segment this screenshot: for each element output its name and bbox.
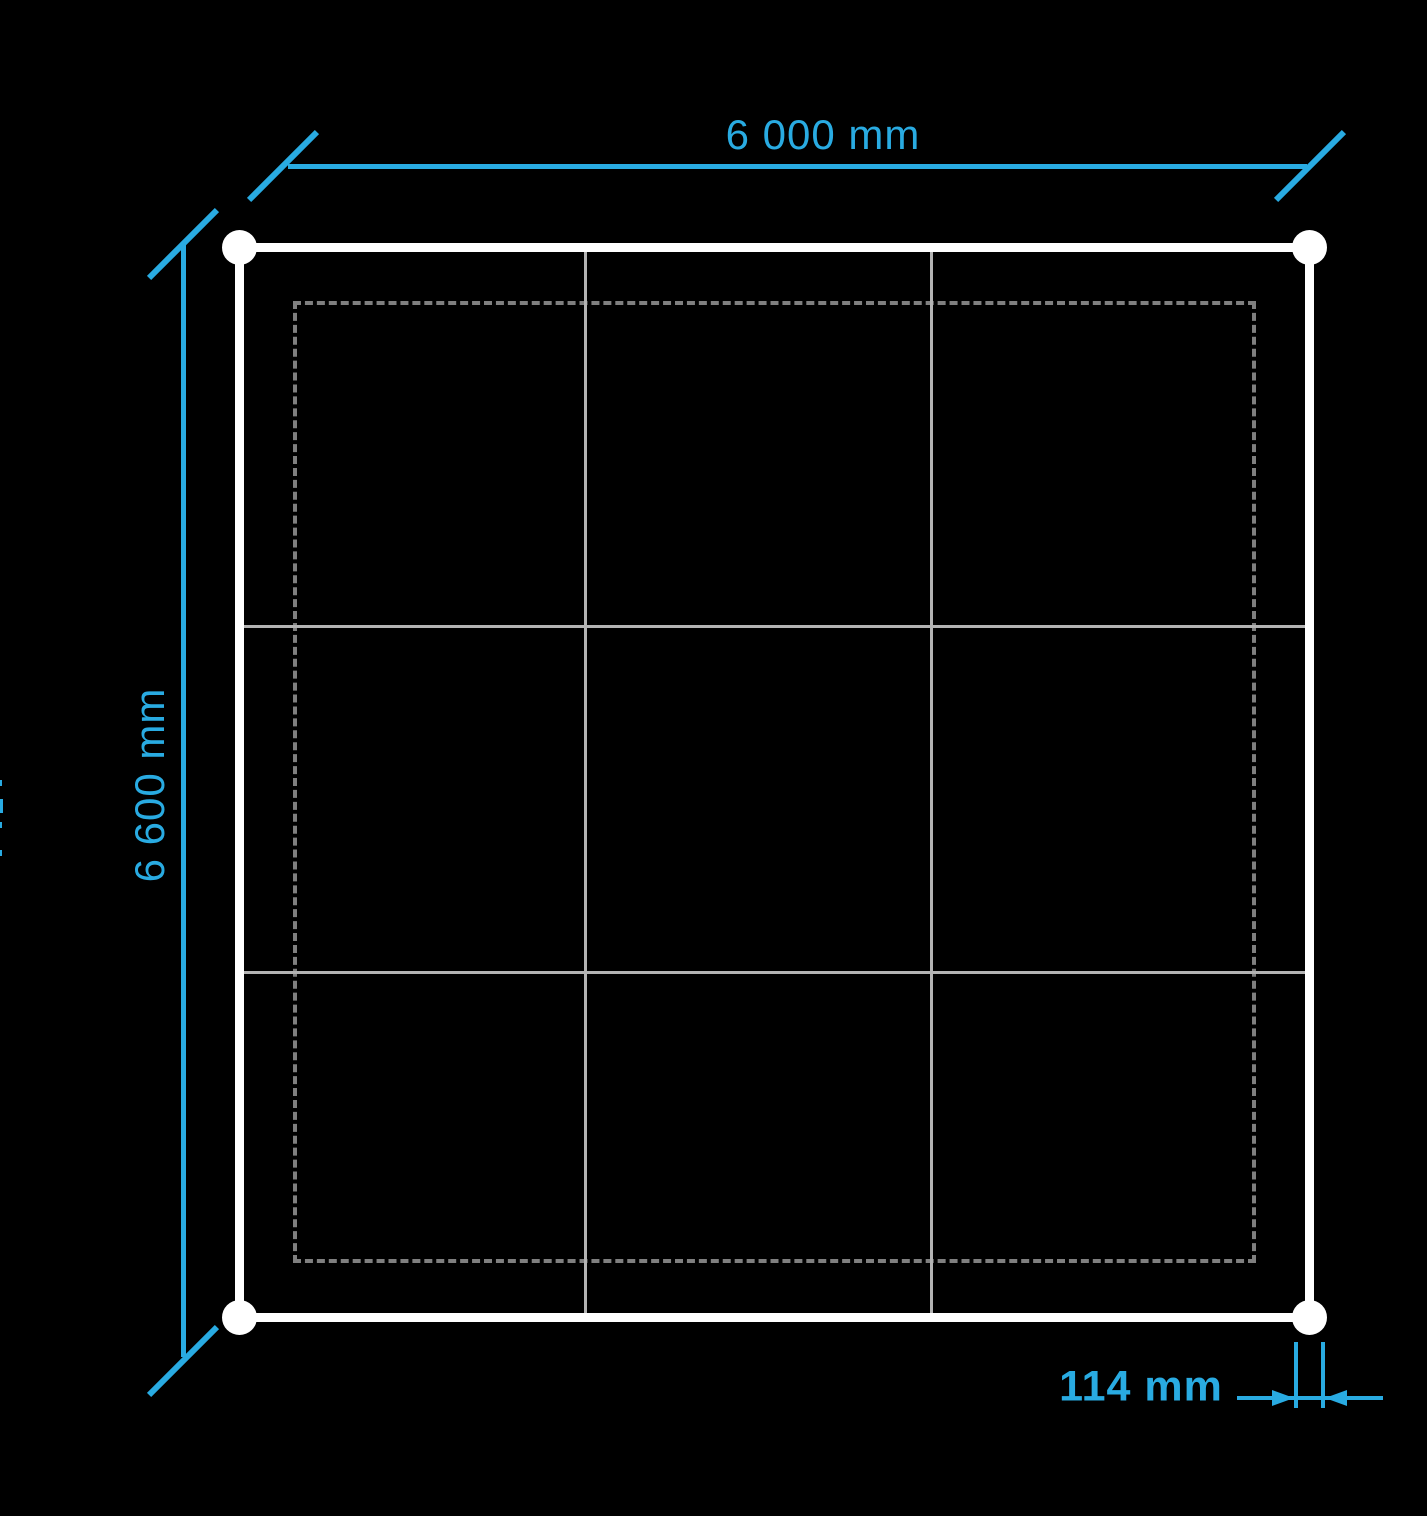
clipped-label-fragment [0, 799, 3, 813]
frame-outline [235, 243, 1314, 1322]
detail-dimension-line [1237, 1396, 1383, 1400]
corner-marker-bottom-left [222, 1300, 257, 1335]
corner-marker-top-right [1292, 230, 1327, 265]
detail-dimension-label: 114 mm [1059, 1363, 1223, 1412]
width-dimension-label: 6 000 mm [726, 111, 921, 159]
corner-marker-top-left [222, 230, 257, 265]
height-dimension-line [181, 245, 186, 1357]
clipped-label-fragment [0, 850, 2, 856]
width-dimension-line [288, 164, 1307, 169]
arrowhead-left-icon [1325, 1390, 1347, 1406]
technical-drawing-canvas: 6 000 mm 6 600 mm 114 mm [0, 0, 1427, 1516]
corner-marker-bottom-right [1292, 1300, 1327, 1335]
clipped-label-fragment [0, 822, 2, 828]
arrowhead-right-icon [1272, 1390, 1294, 1406]
height-dimension-label: 6 600 mm [126, 688, 174, 883]
clipped-label-fragment [0, 780, 2, 786]
